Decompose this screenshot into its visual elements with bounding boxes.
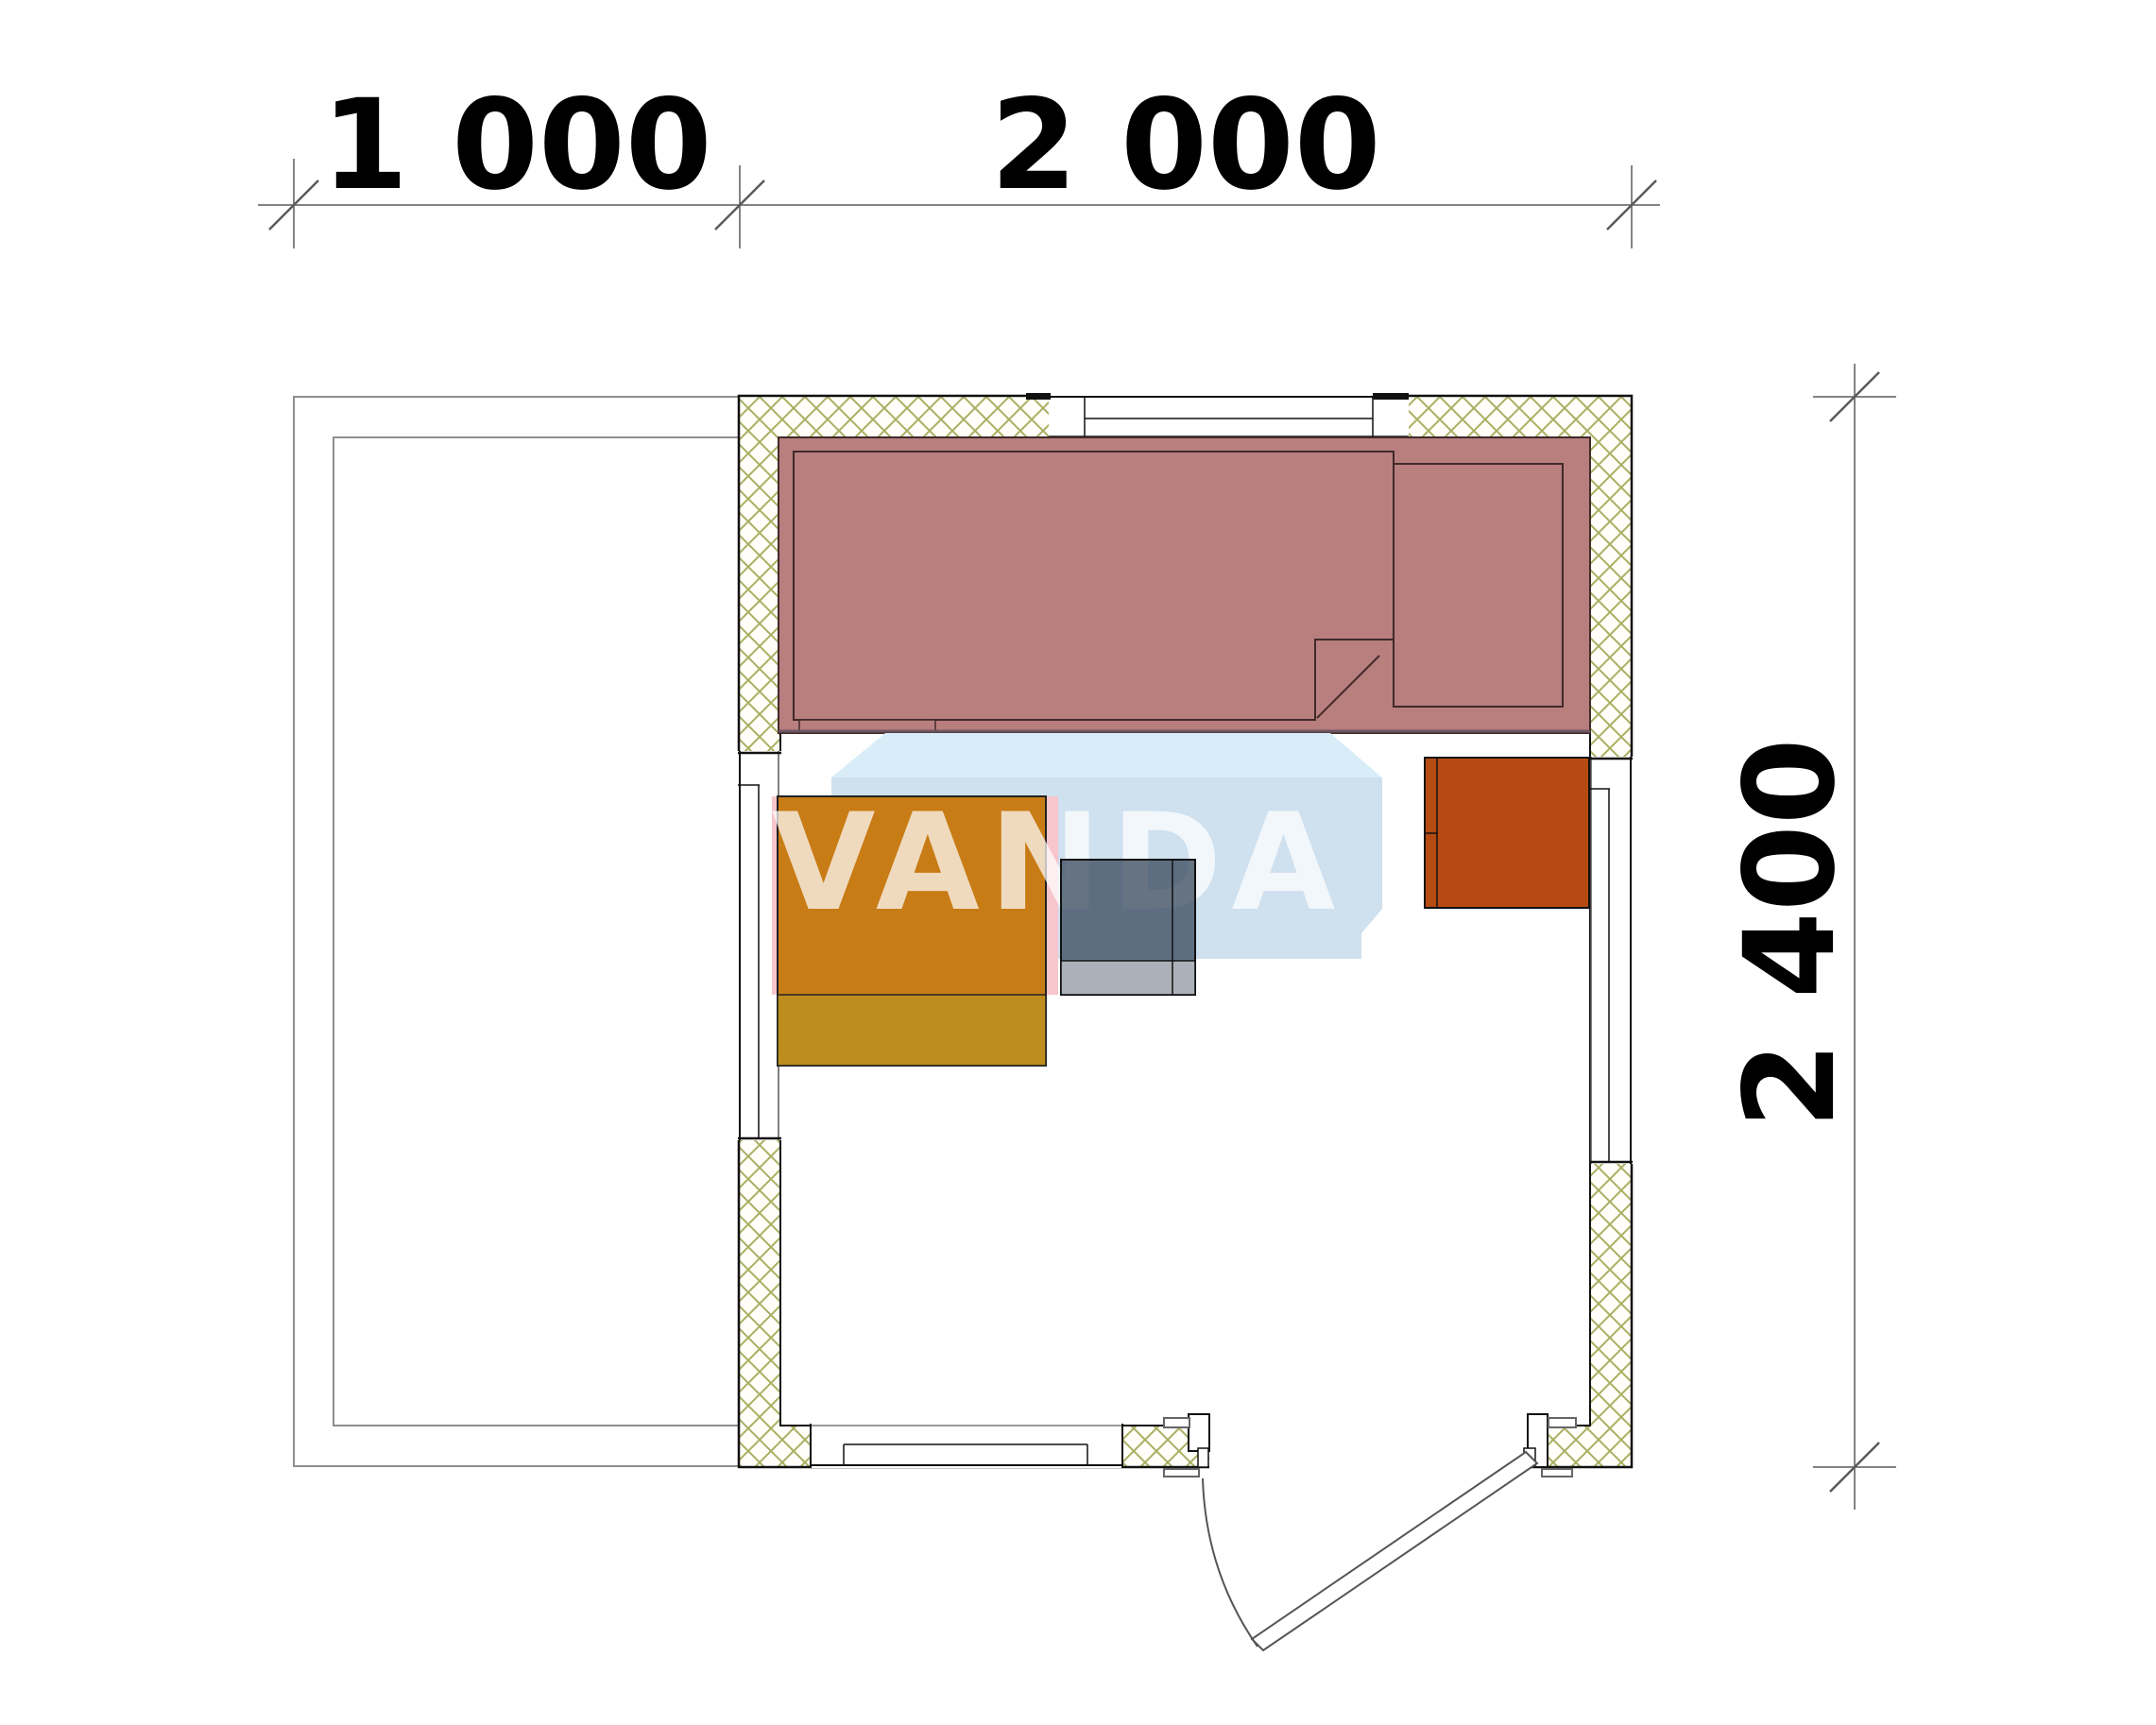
- window-bottom-opening: [811, 1424, 1122, 1468]
- door-frame-left-bar-out: [1164, 1469, 1199, 1477]
- stove-heater: [1425, 758, 1589, 908]
- floor-plan-drawing: VANDA 1 000 2 000: [0, 0, 2156, 1725]
- terrace-outer-outline: [294, 397, 739, 1466]
- door-frame-left-step: [1198, 1448, 1208, 1467]
- window-right: [1589, 757, 1634, 1164]
- dimension-right: 2 400: [1718, 364, 1896, 1510]
- door-leaf: [1252, 1452, 1537, 1650]
- dimension-label-2000: 2 000: [990, 73, 1380, 218]
- watermark-top-face: [831, 733, 1382, 777]
- stool: [1061, 860, 1195, 995]
- door-swing-arc: [1203, 1478, 1258, 1647]
- door-frame-left-bar-in: [1164, 1418, 1189, 1427]
- window-top-cap-left: [1026, 393, 1051, 400]
- window-top-opening: [1049, 393, 1409, 439]
- stool-front: [1061, 961, 1195, 995]
- door-frame-left: [1189, 1414, 1209, 1451]
- dimension-top: 1 000 2 000: [258, 73, 1660, 248]
- window-bottom: [811, 1424, 1122, 1468]
- heater-body: [1425, 758, 1589, 908]
- window-top-cap-right: [1373, 393, 1409, 400]
- bench-left-outline: [794, 452, 1394, 720]
- door-frame-right-bar-out: [1542, 1469, 1572, 1477]
- table-front: [778, 995, 1046, 1066]
- terrace-inner-outline: [334, 437, 739, 1426]
- bench-right-outline: [1394, 464, 1563, 707]
- sauna-bench: [779, 437, 1590, 733]
- dimension-label-2400: 2 400: [1718, 738, 1863, 1128]
- terrace: [294, 397, 739, 1466]
- floor-plan-canvas: VANDA 1 000 2 000: [0, 0, 2156, 1725]
- window-top: [1026, 393, 1409, 439]
- window-right-opening: [1591, 757, 1634, 1164]
- door-opening: [1209, 1411, 1528, 1470]
- door: [1164, 1411, 1576, 1650]
- watermark-text: VANDA: [772, 785, 1345, 941]
- dimension-label-1000: 1 000: [321, 73, 711, 218]
- door-frame-right-bar-in: [1549, 1418, 1576, 1427]
